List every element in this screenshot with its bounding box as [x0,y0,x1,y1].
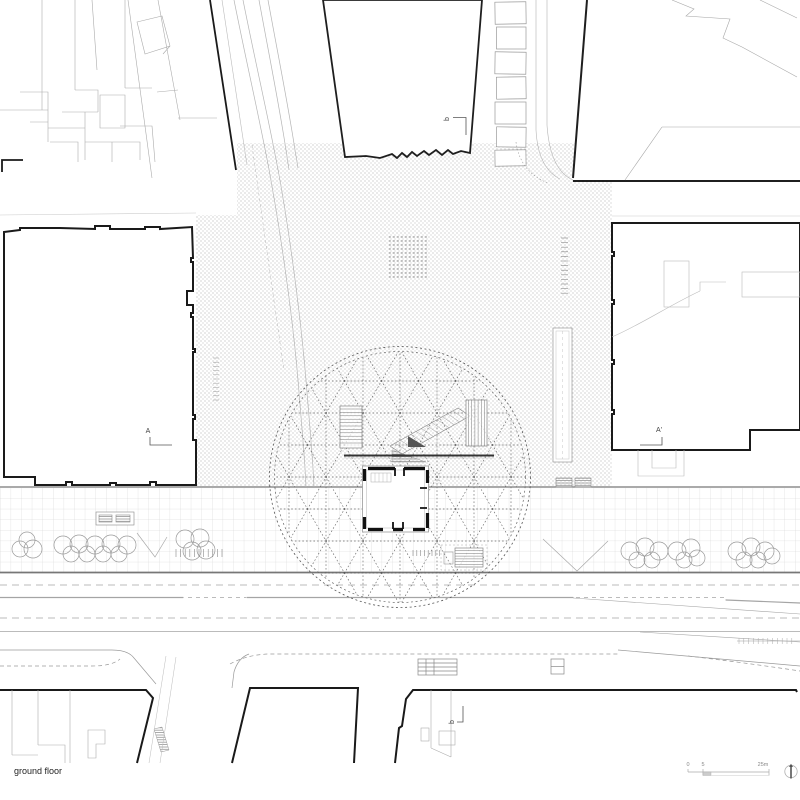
plaza-paving-texture [196,143,612,487]
underground-ramp [553,328,572,462]
bus-shelter-left [96,512,134,525]
street-edge-line-left [0,213,196,215]
city-fabric-block [0,0,247,178]
tram-platforms [418,659,564,675]
side-street-edges [149,656,176,763]
building-southeast [395,690,797,763]
road-far-edge [0,641,800,688]
building-south [232,688,358,763]
stair-block-east [466,400,487,446]
scale-zero-label: 0 [686,762,689,768]
building-north [323,0,482,158]
road-markings [0,585,800,642]
section-b-bottom-label: b [449,720,456,724]
drawing-title: ground floor [14,766,62,776]
site-plan-drawing: A A' b b ground floor 0 5 25m [0,0,800,800]
north-arrow-icon [785,764,797,779]
tram-stop-platform [154,727,169,752]
scale-bar: 0 5 25m [686,762,769,776]
building-northeast [573,0,800,181]
site-plan-page: A A' b b ground floor 0 5 25m [0,0,800,800]
alley-stair-strip [495,2,526,166]
building-west [4,226,196,485]
scale-max-label: 25m [758,762,769,768]
stair-block-west [340,406,362,448]
block-edge-line [210,0,236,170]
building-east [612,223,800,476]
section-a-label: A [146,428,151,435]
central-pavilion [363,466,429,532]
block-corner [2,160,23,172]
building-southwest [0,690,153,763]
section-a-prime-label: A' [656,427,662,434]
section-b-top-label: b [444,117,451,121]
scale-five-label: 5 [701,762,704,768]
